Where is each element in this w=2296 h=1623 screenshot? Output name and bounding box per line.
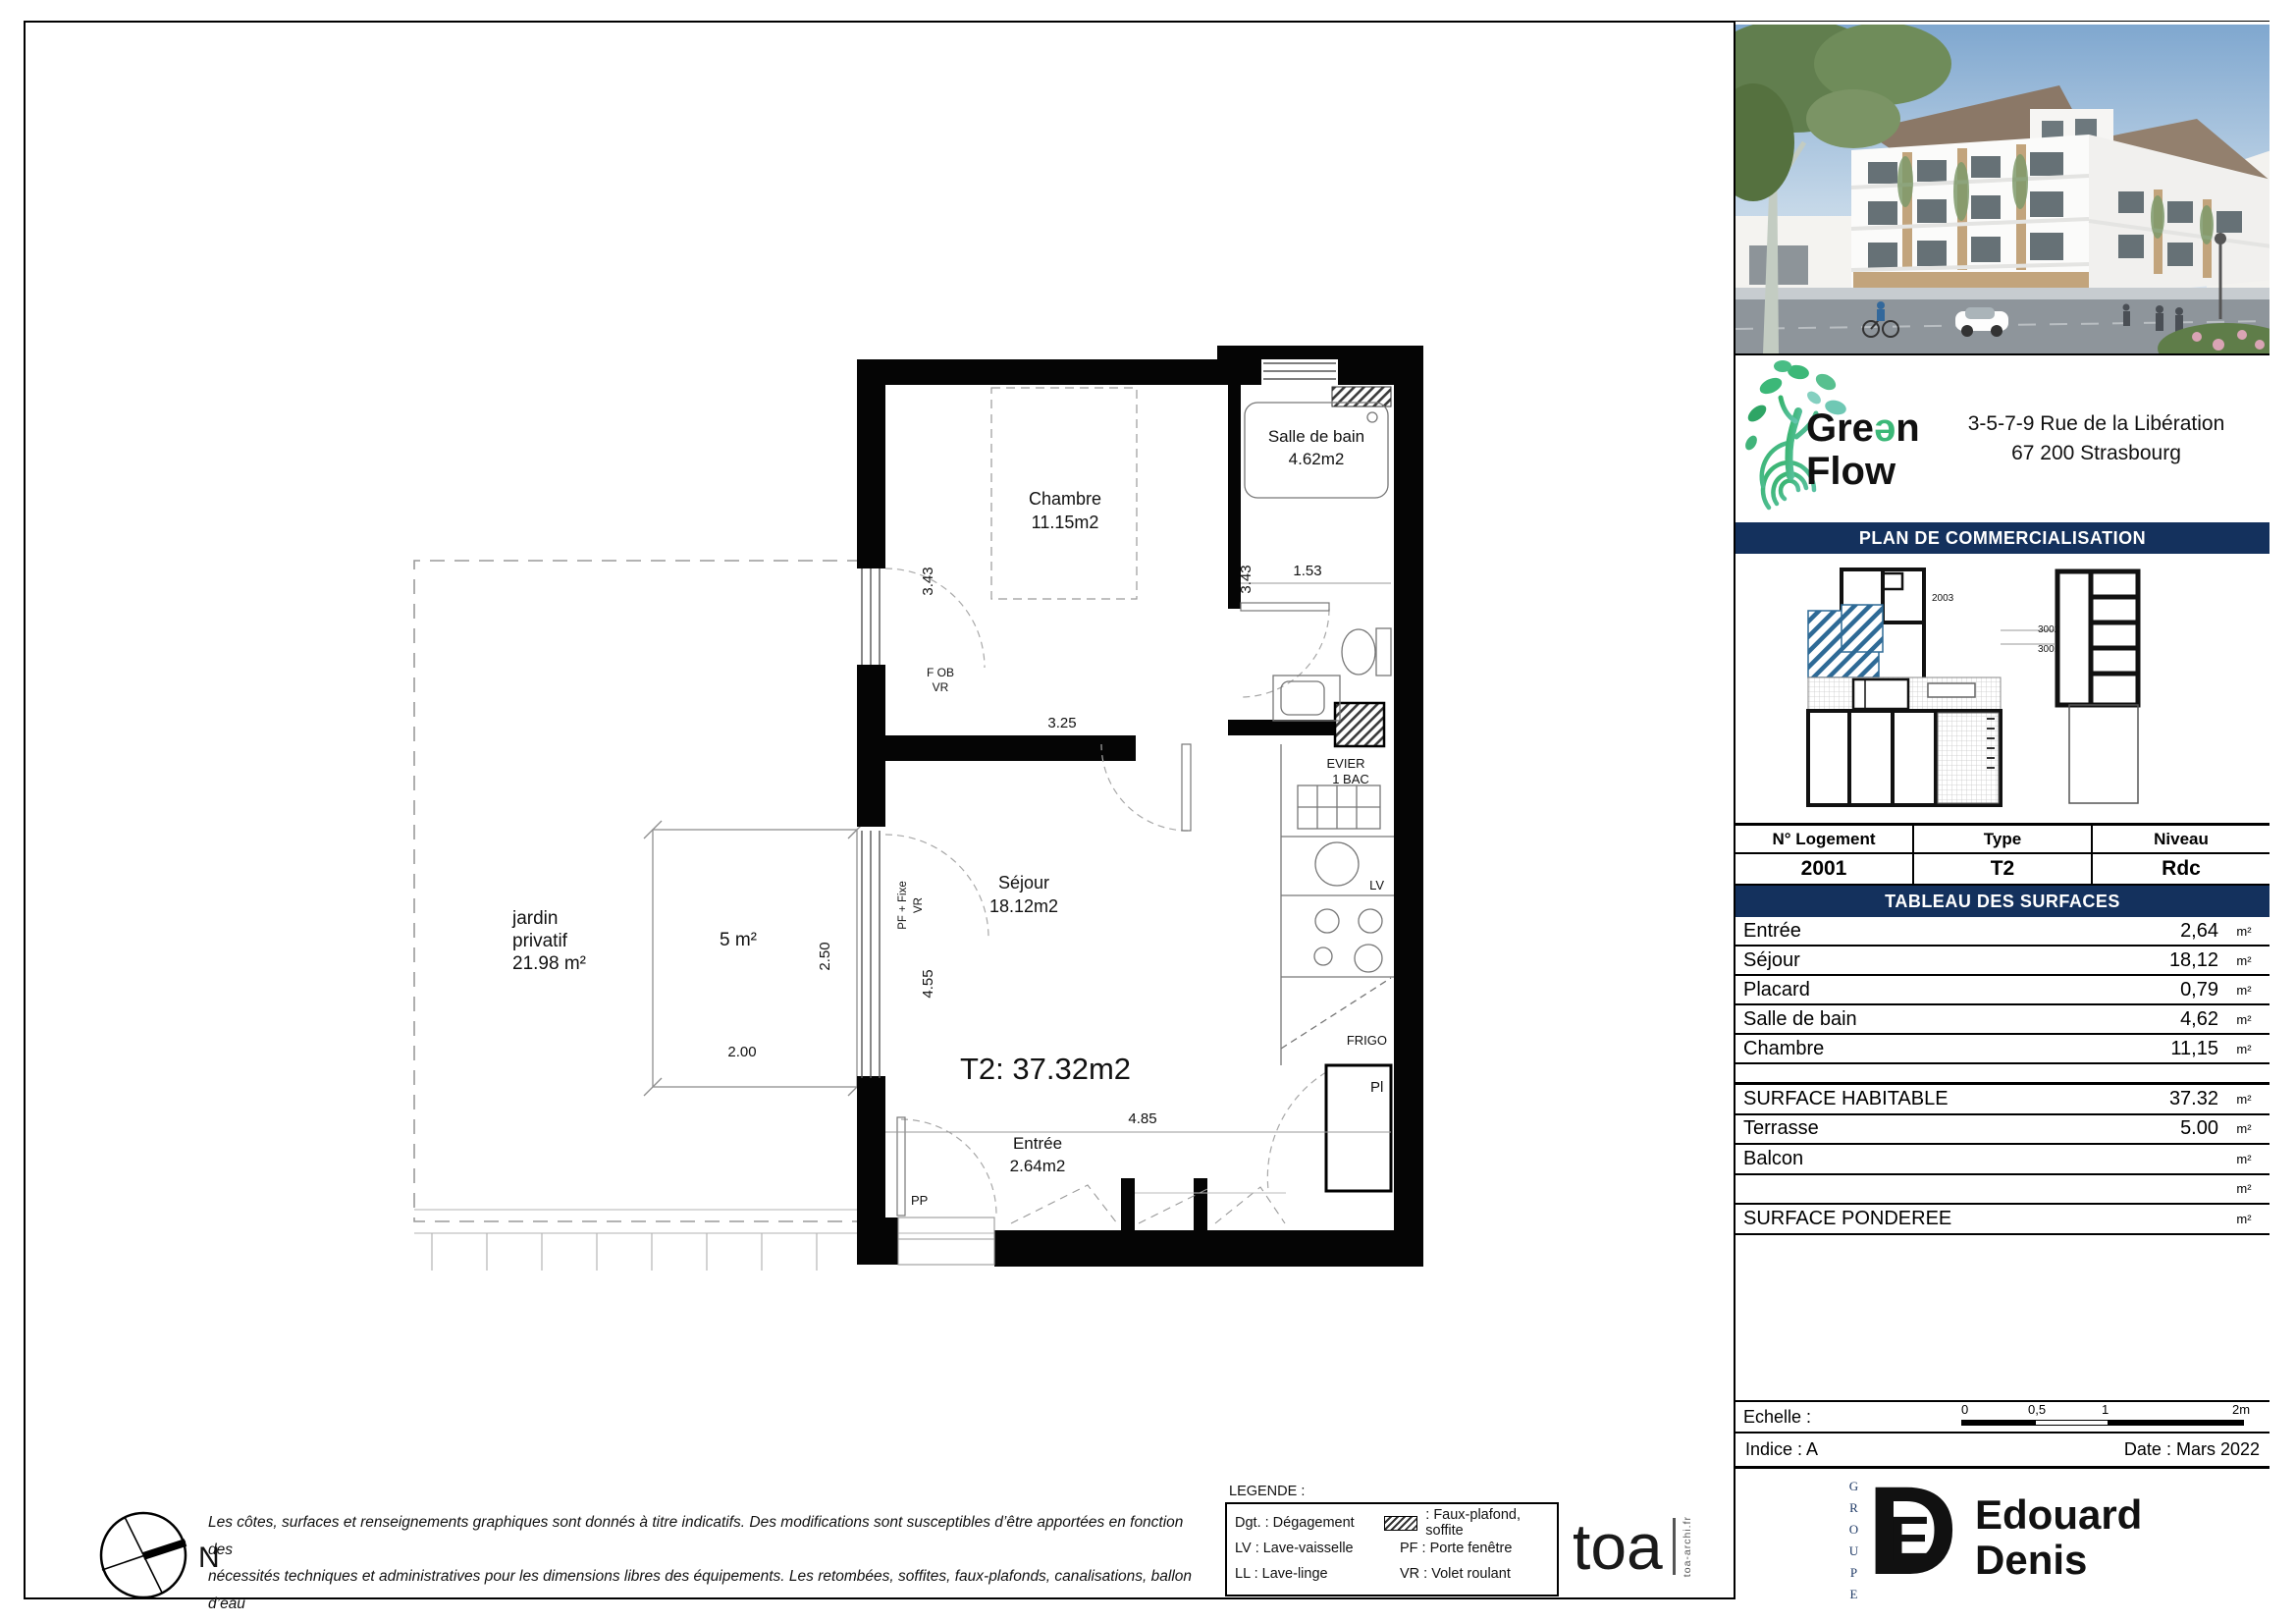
washbasin-counter [1273, 676, 1340, 721]
scale-segment [2035, 1420, 2109, 1426]
kitchen-pl: Pl [1370, 1079, 1383, 1096]
address-line-1: 3-5-7-9 Rue de la Libération [1923, 409, 2269, 439]
row-unit: m² [2218, 953, 2269, 968]
dim-3.43-mid: 3.43 [1238, 565, 1255, 593]
scale-segment [1961, 1420, 2035, 1426]
revision-row: Indice : A Date : Mars 2022 [1735, 1434, 2269, 1469]
table-row: SURFACE HABITABLE 37.32 m² [1735, 1085, 2269, 1115]
toa-url: toa-archi.fr [1682, 1516, 1693, 1577]
row-value: 5.00 [2120, 1117, 2218, 1140]
dim-1.53: 1.53 [1293, 563, 1321, 579]
row-value: 18,12 [2120, 949, 2218, 972]
toilet-bowl [1342, 629, 1375, 675]
row-value: 2,64 [2120, 920, 2218, 943]
legend-dgt: Dgt. : Dégagement [1235, 1515, 1384, 1531]
entry-porch [898, 1217, 994, 1265]
garden-label-1: jardin [511, 908, 558, 929]
table-row: Salle de bain 4,62 m² [1735, 1005, 2269, 1035]
room-sejour-area: 18.12m2 [989, 896, 1058, 916]
table-row: Terrasse 5.00 m² [1735, 1115, 2269, 1146]
washbasin [1281, 681, 1324, 715]
legend-pf: PF : Porte fenêtre [1400, 1541, 1512, 1556]
terrace-area-label: 5 m² [720, 930, 757, 950]
row-label: Entrée [1735, 920, 2120, 943]
row-unit: m² [2218, 1012, 2269, 1027]
svg-text:VR: VR [913, 897, 925, 913]
plan-sheet: Chambre 11.15m2 Salle de bain 4.62m2 Séj… [0, 0, 2296, 1623]
hob-burner [1315, 909, 1339, 933]
table-row: Entrée 2,64 m² [1735, 917, 2269, 947]
plan-labels: Chambre 11.15m2 Salle de bain 4.62m2 Séj… [511, 427, 1387, 1208]
garden-label-3: 21.98 m² [512, 953, 586, 974]
legend: LEGENDE : Dgt. : Dégagement : Faux-plafo… [1225, 1484, 1559, 1596]
hob-burner [1314, 947, 1332, 965]
surface-table: Entrée 2,64 m² Séjour 18,12 m² Placard 0… [1735, 917, 2269, 1064]
monogram-e: E [1889, 1503, 1931, 1574]
col-niveau: Niveau [2091, 826, 2269, 852]
dim-2.50: 2.50 [817, 942, 833, 970]
brand-e: ə [1874, 406, 1896, 450]
ed-monogram: D E Edouard Denis [1865, 1472, 2160, 1594]
indice-label: Indice : A [1745, 1439, 1818, 1460]
legend-box: Dgt. : Dégagement : Faux-plafond, soffit… [1225, 1502, 1559, 1596]
bathtub-drain [1367, 412, 1377, 422]
row-unit: m² [2218, 924, 2269, 939]
dimension-lines [885, 583, 1391, 1132]
toa-logo: toa toa-archi.fr [1573, 1497, 1730, 1596]
row-unit: m² [2218, 1092, 2269, 1107]
table-row: Placard 0,79 m² [1735, 976, 2269, 1005]
room-chambre-name: Chambre [1029, 489, 1101, 509]
closet-doors [1011, 1185, 1286, 1223]
siteplan-label-3001: 3001 [2038, 644, 2060, 655]
row-unit: m² [2218, 1181, 2269, 1196]
greenflow-logo: Greən Flow [1741, 360, 1923, 517]
scale-tick: 2m [2232, 1402, 2250, 1417]
kitchen-evier-1: EVIER [1326, 756, 1364, 771]
hob-burner [1359, 909, 1382, 933]
row-value: 4,62 [2120, 1008, 2218, 1031]
disclaimer-text: Les côtes, surfaces et renseignements gr… [208, 1509, 1195, 1623]
project-address: 3-5-7-9 Rue de la Libération 67 200 Stra… [1923, 409, 2269, 469]
scale-label: Echelle : [1735, 1407, 1961, 1428]
garden-fence-ticks [432, 1233, 817, 1271]
banner-plan-commercialisation: PLAN DE COMMERCIALISATION [1735, 522, 2269, 554]
table-row: Balcon m² [1735, 1145, 2269, 1175]
dim-2.00: 2.00 [727, 1044, 756, 1060]
room-entree-area: 2.64m2 [1010, 1157, 1066, 1175]
window-label-fob-vr: VR [933, 680, 949, 694]
window-label-fob: F OB [927, 666, 954, 679]
room-sdb-name: Salle de bain [1268, 427, 1364, 446]
val-numero: 2001 [1735, 854, 1912, 884]
siteplan-label-3002: 3002 [2038, 624, 2060, 635]
scale-segment [2109, 1420, 2244, 1426]
scale-tick: 0,5 [2028, 1402, 2046, 1417]
dim-4.85: 4.85 [1128, 1110, 1156, 1127]
col-type: Type [1912, 826, 2091, 852]
edouard-denis-logo: GROUPE D E Edouard Denis [1735, 1469, 2269, 1596]
table-row: SURFACE PONDEREE m² [1735, 1205, 2269, 1235]
totals-table: SURFACE HABITABLE 37.32 m² Terrasse 5.00… [1735, 1084, 2269, 1235]
row-label: Placard [1735, 979, 2120, 1001]
scale-tick: 0 [1961, 1402, 1968, 1417]
unit-area-label: T2: 37.32m2 [960, 1052, 1131, 1086]
door-label-pp: PP [911, 1193, 928, 1208]
key-site-plan: 2003 3002 3001 [1735, 554, 2269, 823]
disclaimer-line: Les côtes, surfaces et renseignements gr… [208, 1509, 1195, 1563]
row-label: SURFACE PONDEREE [1735, 1208, 2120, 1230]
val-type: T2 [1912, 854, 2091, 884]
sink-bowl [1315, 842, 1359, 886]
dim-3.43-left: 3.43 [920, 567, 936, 595]
row-unit: m² [2218, 983, 2269, 998]
brand-section: Greən Flow 3-5-7-9 Rue de la Libération … [1735, 353, 2269, 522]
floor-plan-drawing: Chambre 11.15m2 Salle de bain 4.62m2 Séj… [0, 0, 1735, 1623]
logement-table-values: 2001 T2 Rdc [1735, 852, 2269, 884]
soffit-hatch-top [1332, 387, 1391, 406]
legend-lv: LV : Lave-vaisselle [1235, 1541, 1400, 1556]
brand-gre: Gre [1806, 406, 1874, 450]
dim-4.55: 4.55 [920, 969, 936, 998]
toa-divider [1673, 1518, 1676, 1575]
svg-text:Greən: Greən [1806, 406, 1920, 450]
brand2-edouard: Edouard [1975, 1491, 2142, 1538]
legend-faux-plafond: : Faux-plafond, soffite [1425, 1507, 1549, 1539]
row-label: Salle de bain [1735, 1008, 2120, 1031]
scale-tick: 1 [2102, 1402, 2109, 1417]
room-sejour-name: Séjour [998, 873, 1049, 893]
row-label: Séjour [1735, 949, 2120, 972]
row-unit: m² [2218, 1212, 2269, 1226]
brand-flow: Flow [1806, 450, 1896, 493]
disclaimer-line: chaude, sont mentionnés à titre indicati… [208, 1617, 1195, 1623]
room-entree-name: Entrée [1013, 1134, 1062, 1153]
dim-3.25: 3.25 [1047, 715, 1076, 731]
row-unit: m² [2218, 1121, 2269, 1136]
disclaimer-line: nécessités techniques et administratives… [208, 1563, 1195, 1617]
legend-title: LEGENDE : [1225, 1484, 1559, 1499]
table-row: m² [1735, 1175, 2269, 1206]
row-label: SURFACE HABITABLE [1735, 1088, 2120, 1110]
row-label: Terrasse [1735, 1117, 2120, 1140]
col-numero: N° Logement [1735, 826, 1912, 852]
kitchen-evier-2: 1 BAC [1332, 772, 1369, 786]
soffit-hatch-bath [1335, 703, 1384, 746]
kitchen-fixtures [1281, 744, 1394, 1191]
garden-label-2: privatif [512, 931, 568, 951]
scale-bar: 0 0,5 1 2m [1961, 1404, 2256, 1430]
hob-burner [1355, 945, 1382, 972]
room-chambre-area: 11.15m2 [1032, 513, 1099, 532]
brand-n: n [1896, 406, 1919, 450]
hatch-swatch-icon [1384, 1516, 1418, 1531]
building-photo [1735, 25, 2269, 353]
row-value: 0,79 [2120, 979, 2218, 1001]
row-unit: m² [2218, 1152, 2269, 1166]
table-row: Séjour 18,12 m² [1735, 947, 2269, 976]
row-label: Balcon [1735, 1148, 2120, 1170]
scale-row: Echelle : 0 0,5 1 2m [1735, 1400, 2269, 1434]
date-label: Date : Mars 2022 [2124, 1439, 2260, 1460]
toilet-tank [1376, 628, 1391, 676]
banner-tableau-surfaces: TABLEAU DES SURFACES [1735, 884, 2269, 917]
room-sdb-area: 4.62m2 [1289, 450, 1345, 468]
row-value: 37.32 [2120, 1088, 2218, 1110]
kitchen-frigo: FRIGO [1347, 1033, 1387, 1048]
table-spacer-row [1735, 1055, 2269, 1084]
siteplan-label-2003: 2003 [1932, 593, 1954, 604]
brand2-denis: Denis [1975, 1537, 2087, 1583]
groupe-vertical-text: GROUPE [1845, 1479, 1861, 1587]
val-niveau: Rdc [2091, 854, 2269, 884]
toa-wordmark: toa [1573, 1514, 1663, 1579]
logement-table-header: N° Logement Type Niveau [1735, 823, 2269, 852]
legend-vr: VR : Volet roulant [1400, 1566, 1511, 1582]
address-line-2: 67 200 Strasbourg [1923, 439, 2269, 468]
title-block-panel: Greən Flow 3-5-7-9 Rue de la Libération … [1734, 22, 2270, 1599]
svg-text:PF + Fixe: PF + Fixe [897, 881, 909, 930]
legend-ll: LL : Lave-linge [1235, 1566, 1400, 1582]
kitchen-lv: LV [1369, 878, 1384, 893]
window-label-pf: PF + Fixe VR [897, 881, 925, 930]
